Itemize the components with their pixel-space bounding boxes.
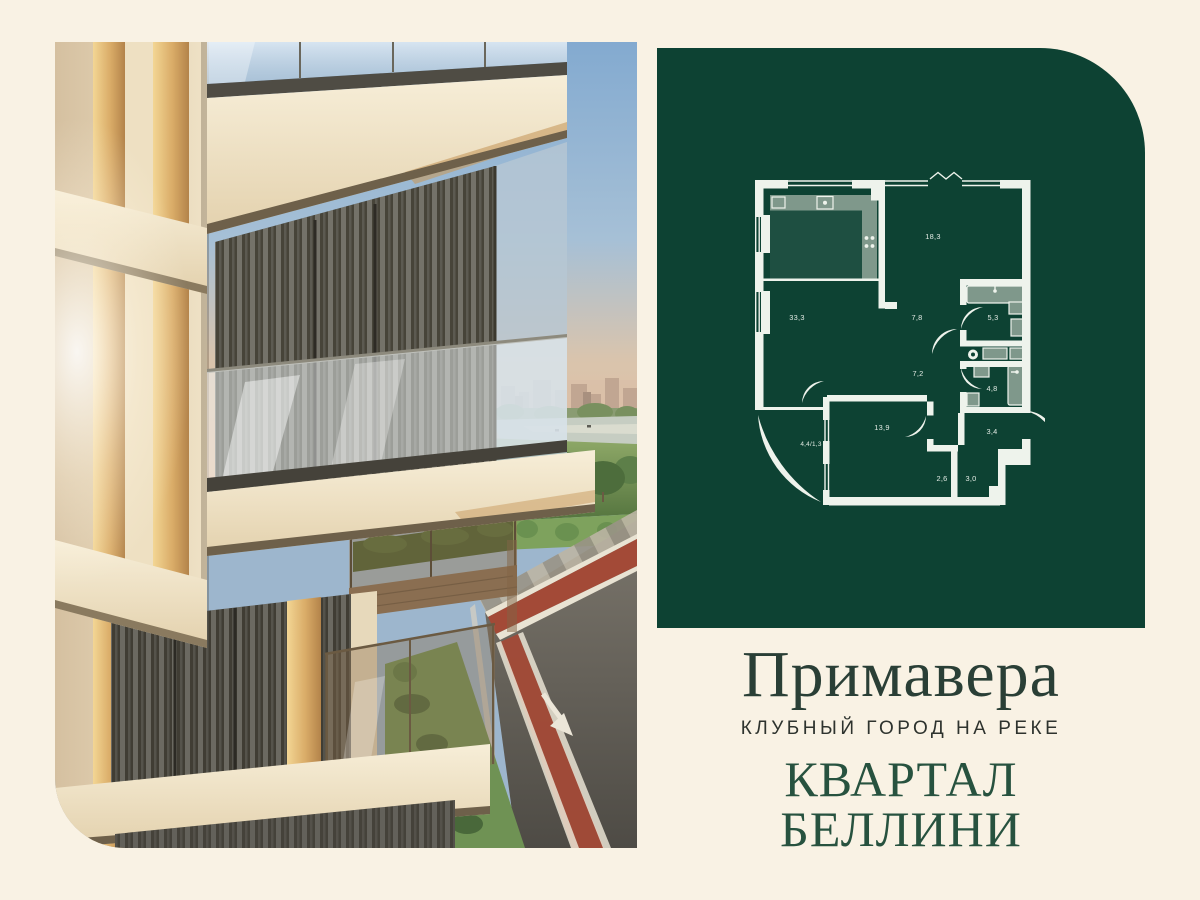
- cabinet-icon: [983, 348, 1007, 359]
- page-root: 33,3 18,3 7,8 5,3 7,2 4,8 13,9 4,4/1,3 3…: [0, 0, 1200, 900]
- building-photo: [55, 42, 637, 848]
- room-area-label: 33,3: [789, 313, 804, 322]
- building-photo-illustration: [55, 42, 637, 848]
- room2-door-arc: [905, 416, 926, 437]
- quarter-name: КВАРТАЛ БЕЛЛИНИ: [657, 754, 1145, 854]
- room-area-label: 13,9: [874, 423, 889, 432]
- balcony-glazing: [758, 415, 821, 502]
- room-area-label: 7,2: [912, 369, 923, 378]
- room-area-label: 5,3: [987, 313, 998, 322]
- hob-icon: [865, 236, 869, 240]
- room-area-label: 4,4/1,3: [800, 441, 821, 448]
- toilet-icon: [967, 393, 979, 406]
- kitchen-zone: [770, 211, 862, 279]
- room-area-label: 18,3: [925, 232, 940, 241]
- room-area-label: 3,0: [965, 474, 976, 483]
- floor-plan: 33,3 18,3 7,8 5,3 7,2 4,8 13,9 4,4/1,3 3…: [745, 152, 1045, 572]
- vent-zigzag-icon: [930, 173, 962, 180]
- entry-door-arc: [1026, 411, 1045, 439]
- balcony-door-arc: [802, 381, 824, 403]
- room-area-label: 3,4: [986, 427, 997, 436]
- caption-block: Примавера КЛУБНЫЙ ГОРОД НА РЕКЕ КВАРТАЛ …: [657, 642, 1145, 854]
- project-name: Примавера: [657, 642, 1145, 708]
- corridor-door-arc: [932, 329, 957, 354]
- sink-drain-icon: [823, 201, 827, 205]
- room-area-label: 4,8: [986, 384, 997, 393]
- sink-icon: [974, 366, 989, 377]
- balcony-block: [207, 42, 595, 556]
- room-area-label: 7,8: [911, 313, 922, 322]
- room-area-label: 2,6: [936, 474, 947, 483]
- bathroom1-door-arc: [961, 307, 983, 329]
- floor-plan-panel: 33,3 18,3 7,8 5,3 7,2 4,8 13,9 4,4/1,3 3…: [657, 48, 1145, 628]
- project-tagline: КЛУБНЫЙ ГОРОД НА РЕКЕ: [657, 718, 1145, 740]
- kitchen-island: [862, 211, 877, 281]
- washer-drum-icon: [971, 353, 975, 357]
